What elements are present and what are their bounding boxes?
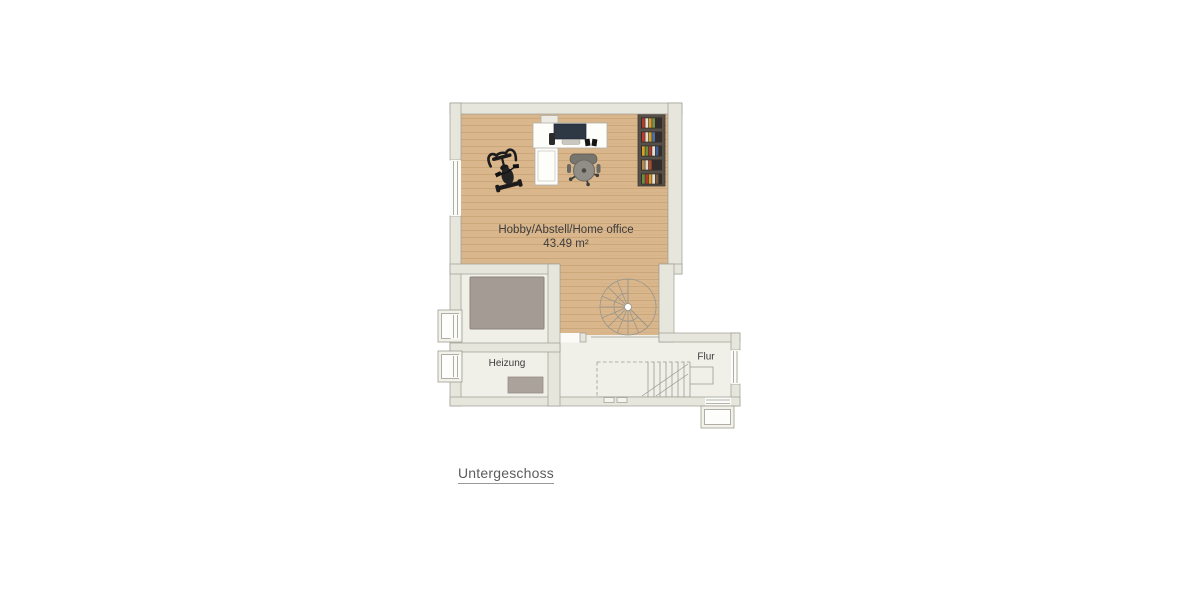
door-opening: [560, 333, 580, 343]
chair-armrest: [567, 164, 571, 173]
light-well: [438, 351, 462, 382]
wall-storage-top: [450, 264, 560, 274]
desk-accessory: [585, 139, 591, 147]
wall-right-lower: [659, 264, 674, 342]
window: [451, 160, 461, 216]
storage-tank: [470, 277, 544, 329]
room-label-hobby: Hobby/Abstell/Home office: [498, 224, 633, 236]
flur-floor: [560, 335, 731, 397]
light-well: [701, 398, 734, 429]
wall-storage-heizung: [450, 343, 560, 352]
room-label-flur: Flur: [697, 352, 715, 363]
floor-plan: Hobby/Abstell/Home office 43.49 m² Heizu…: [0, 0, 1200, 600]
floor-plan-page: Hobby/Abstell/Home office 43.49 m² Heizu…: [0, 0, 1200, 600]
wall-bottom: [450, 397, 740, 406]
wall-flur-top: [659, 333, 740, 342]
desk-accessory: [591, 139, 597, 147]
stair-base-box: [617, 398, 627, 403]
heater-unit: [508, 377, 543, 393]
light-well: [438, 310, 462, 342]
room-label-heizung: Heizung: [489, 358, 526, 369]
wall-top: [450, 103, 682, 114]
wall-storage-right: [548, 264, 560, 406]
room-area-hobby: 43.49 m²: [543, 238, 589, 250]
wall-door-stub: [580, 333, 586, 342]
window: [732, 350, 740, 384]
spiral-stair-hub: [625, 304, 632, 311]
phone: [549, 133, 555, 145]
wall-left: [450, 103, 461, 160]
stair-base-box: [604, 398, 614, 403]
wall-right-upper: [668, 103, 682, 274]
monitor: [554, 124, 586, 139]
floor-title: Untergeschoss: [458, 465, 554, 484]
chair-armrest: [597, 164, 601, 173]
bookshelf: [638, 114, 665, 186]
wall-flur-right: [731, 333, 740, 350]
monitor-base: [562, 140, 580, 145]
